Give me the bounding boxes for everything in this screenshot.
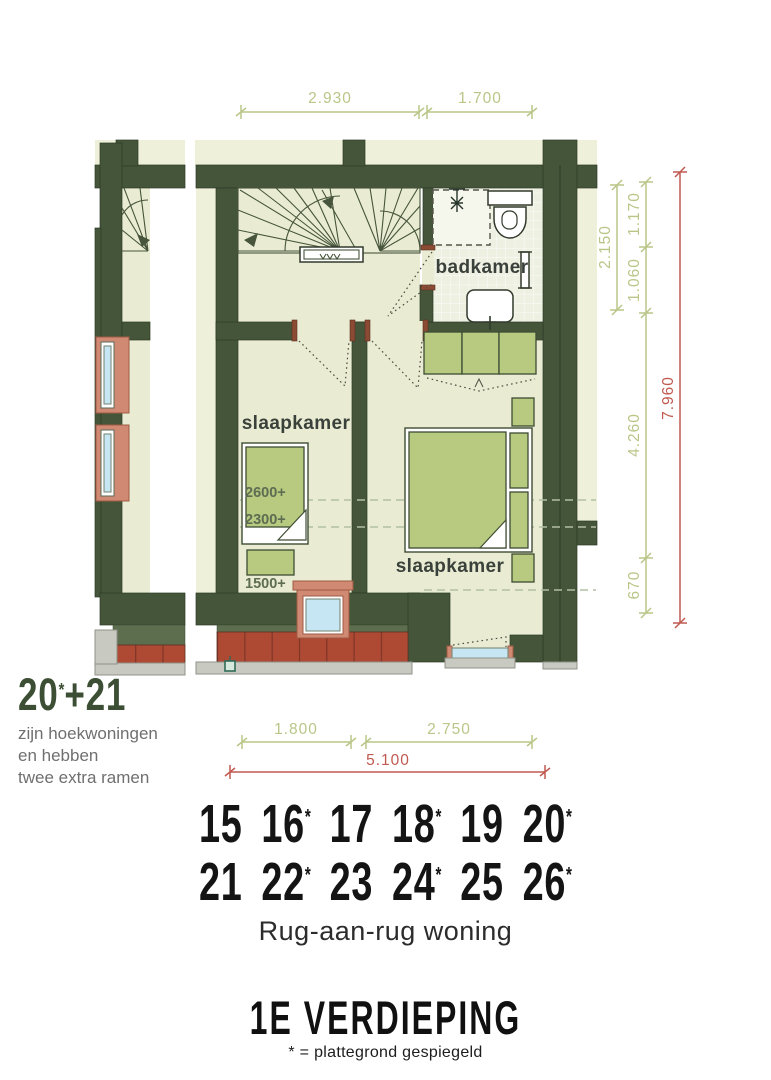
house-number: 17 [330,800,373,850]
nightstand-left [247,550,294,575]
dim-top-left: 2.930 [308,90,352,107]
corner-note: 20*+21 zijn hoekwoningen en hebben twee … [18,672,248,789]
housing-type-label: Rug-aan-rug woning [0,916,771,947]
dim-right-total: 7.960 [660,376,677,420]
house-number: 23 [330,858,373,908]
dim-bottom-b: 2.750 [427,721,471,738]
dim-bottom-a: 1.800 [274,721,318,738]
dim-right-a: 2.150 [597,225,614,269]
bathroom-wall-upper [423,188,433,250]
height-label-1500: 1500+ [245,576,286,592]
house-number-row: 2122*2324*2526* [116,858,656,908]
bathroom-label: badkamer [436,257,529,278]
house-numbers: 1516*1718*1920*2122*2324*2526* [0,800,771,907]
bedroom-left-label: slaapkamer [242,413,351,434]
house-number: 18* [392,800,441,850]
mirrored-footnote: * = plattegrond gespiegeld [0,1044,771,1062]
floor-title: 1E VERDIEPING [123,994,647,1041]
house-number: 24* [392,858,441,908]
side-window-2 [96,425,129,501]
dim-right-e: 670 [626,571,643,600]
dim-right-b: 1.170 [626,192,643,236]
house-number: 20* [523,800,572,850]
house-number: 22* [261,858,310,908]
bedroom-divider-wall [352,322,367,593]
house-number: 16* [261,800,310,850]
side-window-1 [96,337,129,413]
double-bed [405,428,532,552]
dim-right-d: 4.260 [626,413,643,457]
dim-bottom-total: 5.100 [366,752,410,769]
dormer-window [293,581,353,638]
house-number: 21 [199,858,242,908]
dim-right-c: 1.060 [626,258,643,302]
house-number: 25 [460,858,503,908]
house-number: 15 [199,800,242,850]
left-wall [216,188,238,597]
top-wall [196,165,597,188]
height-label-2300: 2300+ [245,512,286,528]
house-number-row: 1516*1718*1920* [116,800,656,850]
house-number: 19 [460,800,503,850]
floorplan-sheet: 2.930 1.700 2.150 1.170 1.060 4.260 670 … [0,0,771,1080]
nightstand-right-bottom [512,554,534,582]
bedroom-right-label: slaapkamer [396,556,505,577]
nightstand-right-top [512,398,534,426]
dim-top-right: 1.700 [458,90,502,107]
corner-note-numbers: 20*+21 [18,672,197,717]
house-number: 26* [523,858,572,908]
corner-note-text: zijn hoekwoningen en hebben twee extra r… [18,723,248,789]
bathroom-wall-lower [420,285,433,322]
height-label-2600: 2600+ [245,485,286,501]
